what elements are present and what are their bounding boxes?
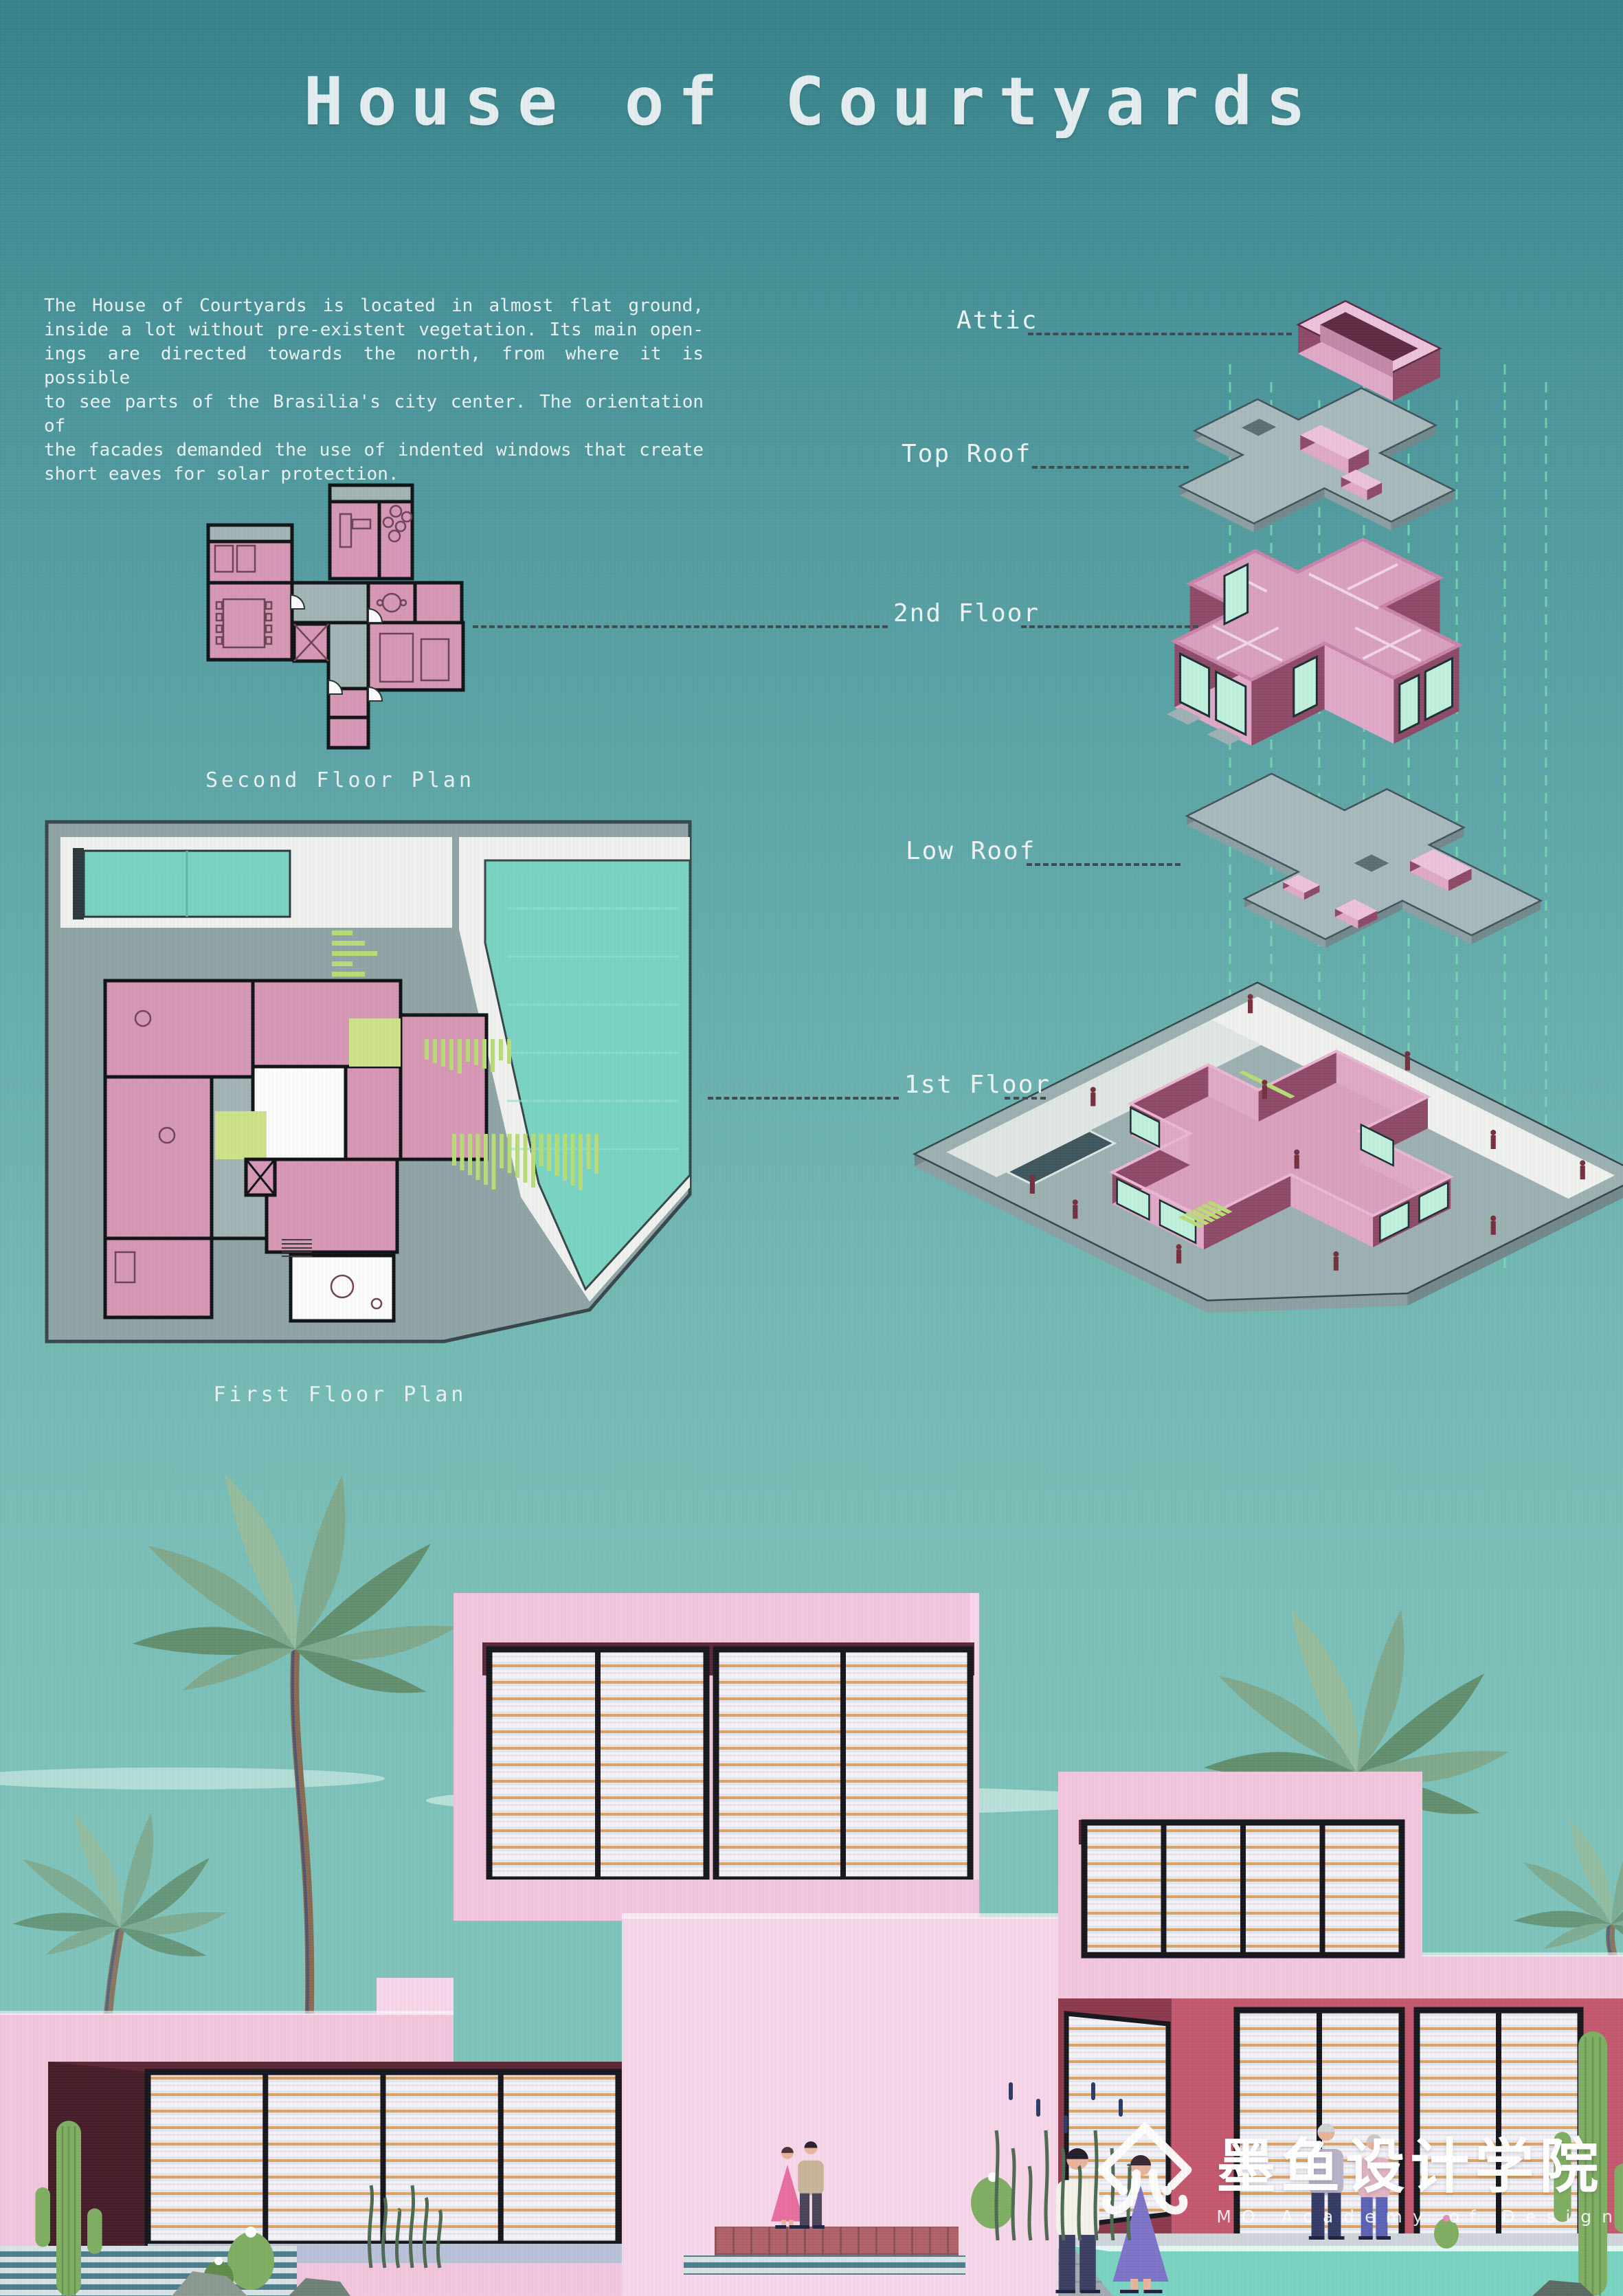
person-figure — [1490, 1216, 1496, 1235]
person-figure — [1029, 1174, 1035, 1194]
louvered-window — [148, 2072, 618, 2244]
page-title: House of Courtyards — [0, 63, 1623, 140]
house-left-volume — [454, 1593, 979, 1921]
attic-label: Attic — [956, 306, 1038, 335]
house-right-volume — [979, 1772, 1623, 1998]
attic-leader-line — [1028, 333, 1292, 335]
first-floor-axon — [915, 983, 1623, 1313]
second-floor-label: 2nd Floor — [893, 599, 1040, 627]
second-floor-plan — [203, 474, 478, 752]
low-roof-axon — [1187, 774, 1541, 948]
second-floor-leader-line-right — [1021, 625, 1198, 628]
person-figure — [1248, 994, 1253, 1013]
second-floor-leader-line-left — [473, 625, 888, 628]
person-figure — [1073, 1199, 1078, 1218]
first-floor-leader-line-left — [708, 1097, 899, 1100]
first-floor-plan-caption: First Floor Plan — [203, 1383, 478, 1407]
low-roof-leader-line — [1027, 863, 1180, 866]
top-roof-axon — [1180, 388, 1455, 533]
person-figure — [1404, 1051, 1410, 1071]
brand-logo: 墨鱼设计学院 MO Academy of Design — [1086, 2107, 1623, 2238]
person-figure — [1490, 1130, 1496, 1149]
second-floor-plan-caption: Second Floor Plan — [203, 768, 478, 792]
house-center-wall — [622, 1913, 1058, 2296]
person-figure — [1294, 1150, 1299, 1169]
logo-english-text: MO Academy of Design — [1216, 2207, 1623, 2227]
squid-logo-icon — [1086, 2107, 1204, 2238]
person-figure — [1580, 1160, 1585, 1179]
second-floor-axon — [1167, 539, 1459, 746]
palm-tree — [12, 1812, 227, 2034]
house-left-parapet — [0, 1978, 454, 2062]
top-roof-leader-line — [1032, 466, 1189, 469]
person-figure — [1262, 1080, 1267, 1099]
palm-tree — [133, 1474, 458, 2024]
louvered-window — [1084, 1823, 1402, 1955]
louvered-window — [716, 1649, 970, 1880]
person-figure — [1176, 1244, 1182, 1263]
house-left-porch — [0, 2062, 622, 2296]
louvered-window — [489, 1649, 706, 1880]
poster: House of Courtyards The House of Courtya… — [0, 0, 1623, 2296]
first-floor-label: 1st Floor — [904, 1071, 1051, 1099]
attic-axon — [1298, 301, 1440, 401]
logo-chinese-text: 墨鱼设计学院 — [1216, 2118, 1623, 2204]
plan-rooms — [208, 485, 463, 748]
person-figure — [1333, 1251, 1339, 1271]
person-figure — [1090, 1087, 1096, 1106]
low-roof-label: Low Roof — [906, 837, 1036, 865]
top-roof-label: Top Roof — [902, 440, 1031, 468]
first-floor-plan — [40, 812, 701, 1357]
